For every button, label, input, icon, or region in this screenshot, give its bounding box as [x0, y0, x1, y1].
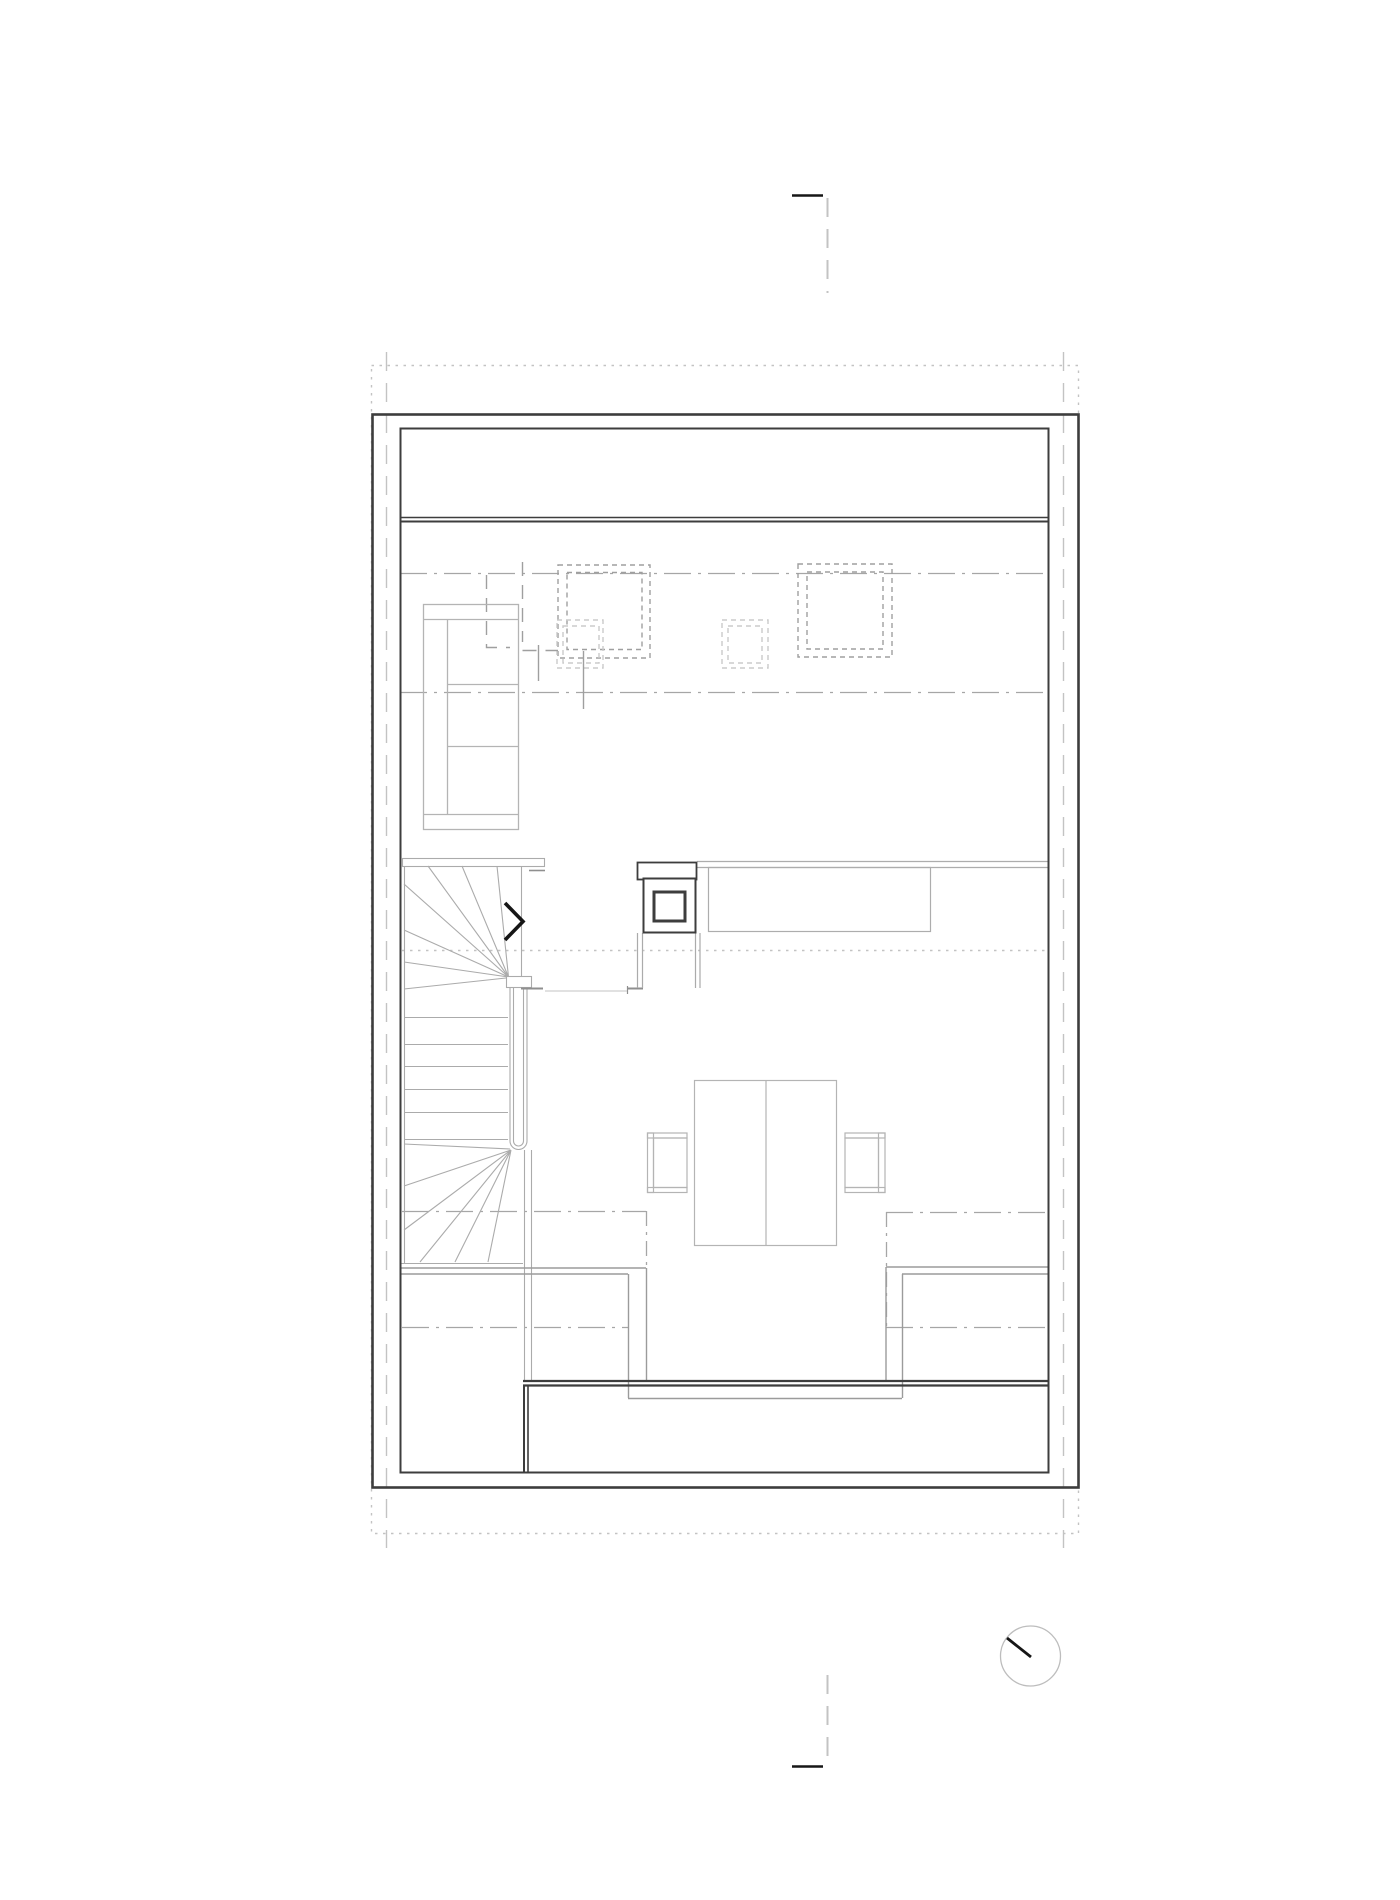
chair-right-back	[879, 1133, 886, 1193]
staircase	[400, 859, 700, 1382]
chimney-cap	[638, 863, 697, 880]
wardrobe-outline	[424, 605, 519, 830]
skylight-below-left-outer	[557, 620, 603, 668]
chair-right	[845, 1133, 885, 1193]
straight-treads	[404, 1018, 508, 1140]
skylights	[487, 562, 893, 709]
chair-left	[648, 1133, 688, 1193]
skylight-below-mid-inner	[728, 626, 762, 663]
winder-fan-top	[404, 866, 509, 977]
skylights-lower-level	[557, 620, 768, 668]
chimney-flue	[654, 892, 685, 921]
skylight-below-mid-outer	[722, 620, 768, 668]
landing-stubs	[521, 871, 643, 995]
skylight-left-inner	[567, 573, 642, 650]
reference-marks	[792, 196, 828, 1767]
counter	[697, 862, 1048, 932]
wardrobe-left	[423, 605, 519, 830]
tread-sloped-top	[404, 978, 506, 989]
tread-sloped-bottom	[404, 1144, 510, 1149]
skylight-right-inner	[807, 572, 883, 649]
chair-left-seat	[654, 1138, 688, 1188]
handrail-inner	[514, 988, 524, 1146]
north-needle-icon	[1007, 1638, 1031, 1657]
north-indicator	[1001, 1626, 1061, 1686]
stair-top-landing-edge	[403, 859, 545, 867]
outer-wall	[373, 415, 1079, 1488]
floor-plan-sheet	[0, 0, 1400, 1900]
chimney-side-stubs	[638, 933, 701, 988]
chair-left-back	[648, 1133, 654, 1193]
counter-body	[709, 868, 931, 932]
floor-plan-drawing	[0, 0, 1400, 1900]
skylight-left-outer	[558, 565, 650, 658]
skylight-right-outer	[798, 564, 892, 657]
winder-fan-bottom	[404, 1150, 511, 1262]
structural-walls	[373, 415, 1079, 1488]
handrail-outer	[510, 988, 527, 1150]
newel-post	[507, 977, 532, 988]
roof-edge-dashed-a	[487, 575, 511, 648]
chimney	[638, 863, 697, 933]
stair-direction-chevron-icon	[505, 903, 523, 940]
dining-set	[648, 1080, 886, 1246]
chair-right-seat	[845, 1138, 879, 1188]
partition-walls	[400, 1267, 1049, 1399]
